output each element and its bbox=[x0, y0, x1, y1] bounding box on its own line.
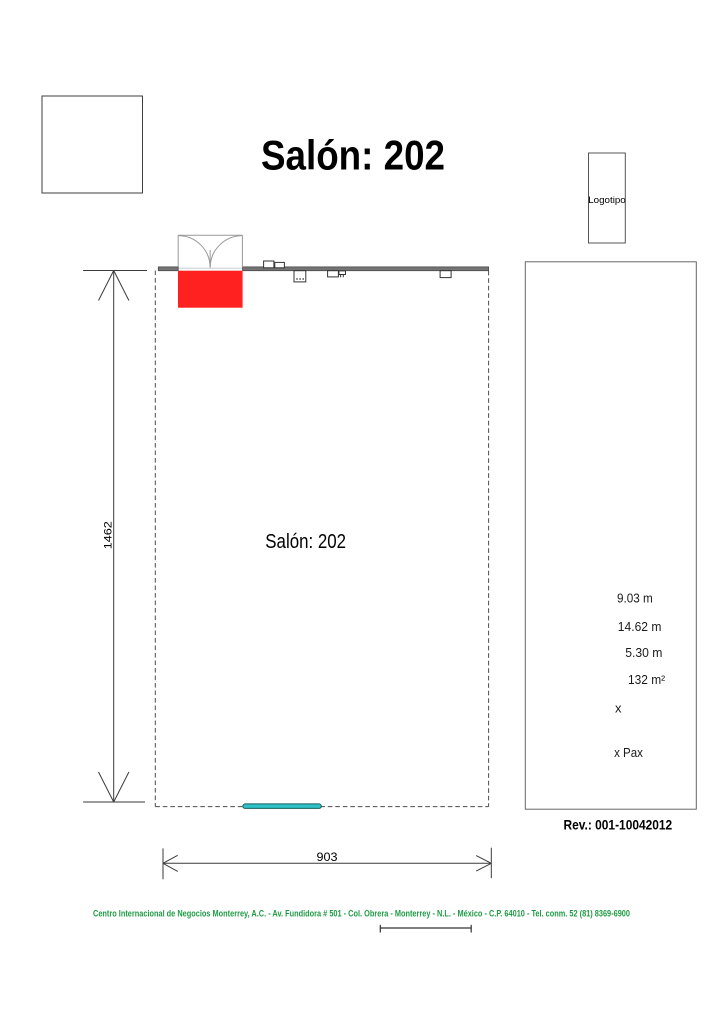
svg-text:14.62 m: 14.62 m bbox=[618, 619, 662, 634]
svg-text:132 m²: 132 m² bbox=[628, 672, 666, 687]
svg-text:5.30 m: 5.30 m bbox=[625, 645, 662, 660]
svg-text:1462: 1462 bbox=[103, 521, 115, 549]
svg-text:Logotipo: Logotipo bbox=[588, 195, 626, 206]
svg-text:Centro Internacional de Negoci: Centro Internacional de Negocios Monterr… bbox=[93, 908, 630, 918]
svg-text:x Pax: x Pax bbox=[614, 745, 643, 760]
svg-text:Rev.: 001-10042012: Rev.: 001-10042012 bbox=[564, 817, 673, 833]
svg-text:903: 903 bbox=[317, 852, 338, 864]
svg-text:Salón: 202: Salón: 202 bbox=[261, 132, 445, 179]
svg-text:x: x bbox=[615, 701, 622, 716]
svg-text:Salón: 202: Salón: 202 bbox=[265, 531, 346, 553]
svg-text:9.03 m: 9.03 m bbox=[617, 590, 653, 605]
